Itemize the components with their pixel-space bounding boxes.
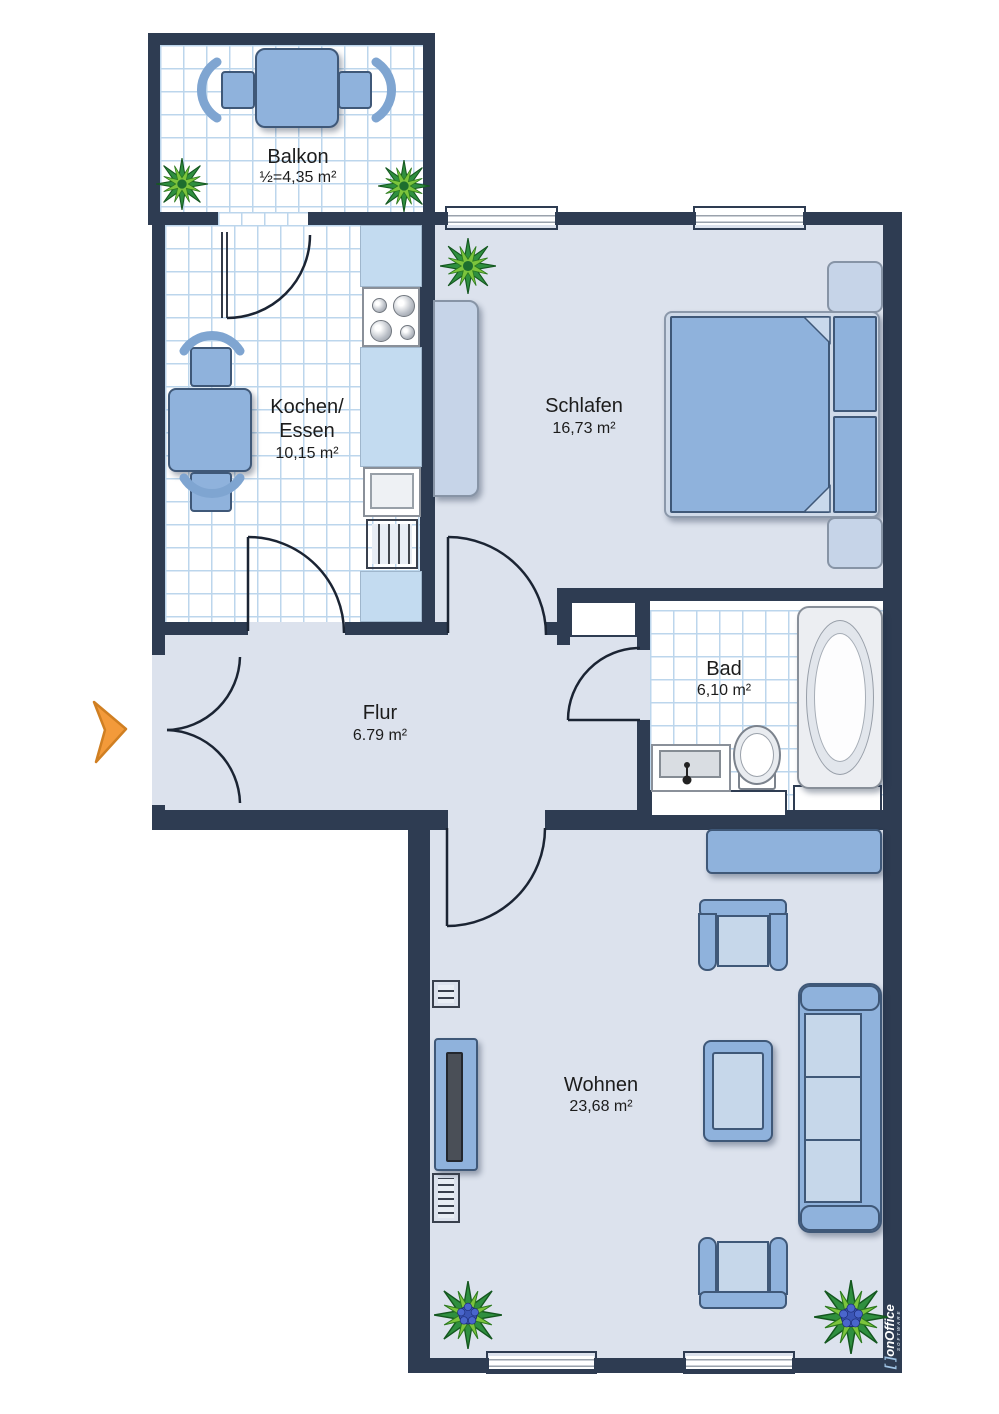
balcony-door-tile-strip <box>218 212 308 225</box>
living-window-right <box>683 1351 795 1374</box>
nightstand-bottom <box>827 517 883 569</box>
armchair-top-arm-left <box>698 913 717 971</box>
armchair-bottom-arm-right <box>769 1237 788 1295</box>
speaker-bottom <box>432 1173 460 1223</box>
armchair-top-seat <box>717 915 769 967</box>
bath-wall-left-upper <box>637 601 650 650</box>
sideboard <box>706 829 882 874</box>
living-door-strip <box>448 808 545 828</box>
wardrobe <box>433 300 479 497</box>
room-label-kochen-line2: Essen <box>279 420 335 443</box>
balcony-chair-right-seat <box>338 71 372 109</box>
coffee-table-top <box>712 1052 764 1130</box>
washbasin <box>651 744 731 792</box>
room-area-kochen: 10,15 m² <box>275 445 338 463</box>
kitchen-table <box>168 388 252 472</box>
stove-burner-icon <box>393 295 415 317</box>
armchair-bottom-arm-left <box>698 1237 717 1295</box>
tv-screen <box>446 1052 463 1162</box>
bed-pillow-bottom <box>833 416 877 513</box>
onoffice-logo: [ ]onOffice SOFTWARE <box>884 1277 906 1369</box>
kitchen-counter-mid <box>360 347 422 467</box>
bath-window-right <box>793 785 882 812</box>
sofa-cushion-line <box>805 1076 861 1078</box>
room-area-schlafen: 16,73 m² <box>552 420 615 438</box>
room-label-wohnen: Wohnen <box>564 1074 638 1097</box>
kitchen-radiator <box>366 519 418 569</box>
armchair-top-arm-right <box>769 913 788 971</box>
bedroom-wall-bottom-right <box>557 588 902 601</box>
nightstand-top <box>827 261 883 313</box>
room-area-bad: 6,10 m² <box>697 682 751 700</box>
sofa-armrest-top <box>800 985 880 1011</box>
sofa-seat <box>804 1013 862 1203</box>
stove <box>362 287 420 347</box>
onoffice-logo-text: onOffice <box>882 1304 897 1357</box>
entrance-arrow-icon <box>94 702 126 762</box>
bath-wall-left-lower <box>637 720 650 812</box>
bedroom-window-left <box>445 206 558 230</box>
bed-pillow-top <box>833 316 877 412</box>
room-label-flur: Flur <box>363 702 397 725</box>
speaker-top <box>432 980 460 1008</box>
kitchen-counter-top <box>360 225 422 287</box>
balcony-kitchen-wall-seg2 <box>308 212 435 225</box>
kitchen-chair-bottom-seat <box>190 472 232 512</box>
balcony-wall-left <box>148 33 160 225</box>
bath-window-left <box>650 790 787 817</box>
living-wall-left <box>408 825 430 1373</box>
stove-burner-icon <box>370 320 392 342</box>
stove-burner-icon <box>372 298 387 313</box>
hall-wall-bottom-seg1 <box>152 810 448 830</box>
kitchen-chair-top-seat <box>190 347 232 387</box>
bathtub-basin <box>814 633 866 762</box>
armchair-bottom-back <box>699 1291 787 1309</box>
room-area-balkon: ½=4,35 m² <box>260 169 337 187</box>
kitchen-sink <box>363 467 421 517</box>
kitchen-wall-bottom-seg2 <box>345 622 448 635</box>
onoffice-logo-subtitle: SOFTWARE <box>896 1277 901 1351</box>
room-label-bad: Bad <box>706 658 742 681</box>
balcony-wall-right <box>423 33 435 225</box>
stove-burner-icon <box>400 325 415 340</box>
bath-step-wall-left <box>557 601 570 645</box>
floor-plan: Balkon ½=4,35 m² Kochen/ Essen 10,15 m² … <box>0 0 999 1414</box>
bedroom-window-right <box>693 206 806 230</box>
balcony-chair-left-seat <box>221 71 255 109</box>
living-wall-bottom <box>408 1358 902 1373</box>
kitchen-counter-bottom <box>360 571 422 622</box>
onoffice-logo-bracket-icon: [ ] <box>882 1357 897 1369</box>
room-label-schlafen: Schlafen <box>545 395 623 418</box>
sofa-armrest-bottom <box>800 1205 880 1231</box>
room-area-flur: 6.79 m² <box>353 727 407 745</box>
hall-wall-left-upper-stub <box>152 635 165 655</box>
bed-mattress <box>670 316 830 513</box>
balcony-wall-top <box>148 33 435 45</box>
entrance-floor-strip <box>152 655 165 805</box>
interior-window-bath <box>570 601 637 637</box>
apartment-wall-right <box>883 212 902 1373</box>
toilet-seat <box>740 733 774 777</box>
kitchen-wall-left <box>152 212 165 635</box>
living-window-left <box>486 1351 597 1374</box>
room-label-balkon: Balkon <box>267 146 328 169</box>
armchair-bottom-seat <box>717 1241 769 1293</box>
kitchen-wall-bottom-seg1 <box>152 622 248 635</box>
sofa-cushion-line <box>805 1139 861 1141</box>
room-label-kochen-line1: Kochen/ <box>270 396 343 419</box>
room-area-wohnen: 23,68 m² <box>569 1098 632 1116</box>
balcony-table <box>255 48 339 128</box>
